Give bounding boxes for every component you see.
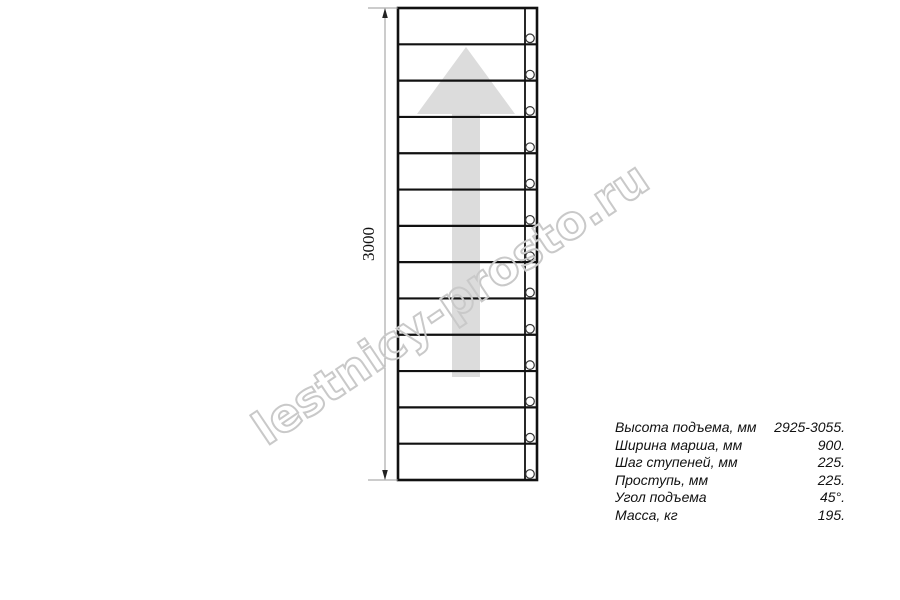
bolt-circle: [526, 179, 535, 188]
spec-value: 225.: [808, 454, 845, 472]
bolt-circle: [526, 397, 535, 406]
spec-value: 2925-3055.: [764, 419, 845, 437]
spec-value: 900.: [808, 437, 845, 455]
bolt-circle: [526, 107, 535, 116]
spec-label: Ширина марша, мм: [615, 437, 742, 455]
spec-label: Шаг ступеней, мм: [615, 454, 738, 472]
bolt-circle: [526, 361, 535, 370]
dimension-label: 3000: [359, 227, 378, 261]
bolt-circle: [526, 288, 535, 297]
bolt-circle: [526, 324, 535, 333]
spec-label: Угол подъема: [615, 489, 707, 507]
spec-row: Ширина марша, мм900.: [615, 437, 845, 455]
spec-row: Масса, кг195.: [615, 507, 845, 525]
spec-row: Проступь, мм225.: [615, 472, 845, 490]
spec-row: Угол подъема45°.: [615, 489, 845, 507]
bolt-circle: [526, 433, 535, 442]
spec-row: Высота подъема, мм2925-3055.: [615, 419, 845, 437]
spec-row: Шаг ступеней, мм225.: [615, 454, 845, 472]
bolt-circle: [526, 34, 535, 43]
stair-drawing-page: 3000 lestnicy-prosto.ru Высота подъема, …: [0, 0, 900, 600]
dimension-arrowhead-bottom: [382, 470, 388, 480]
bolt-circle: [526, 470, 535, 479]
spec-value: 195.: [808, 507, 845, 525]
spec-label: Масса, кг: [615, 507, 678, 525]
spec-value: 225.: [808, 472, 845, 490]
spec-label: Высота подъема, мм: [615, 419, 757, 437]
watermark-text: lestnicy-prosto.ru: [243, 151, 659, 456]
dimension-arrowhead-top: [382, 8, 388, 18]
bolt-circle: [526, 70, 535, 79]
specs-table: Высота подъема, мм2925-3055.Ширина марша…: [615, 419, 845, 524]
bolt-circle: [526, 143, 535, 152]
spec-label: Проступь, мм: [615, 472, 708, 490]
spec-value: 45°.: [810, 489, 845, 507]
